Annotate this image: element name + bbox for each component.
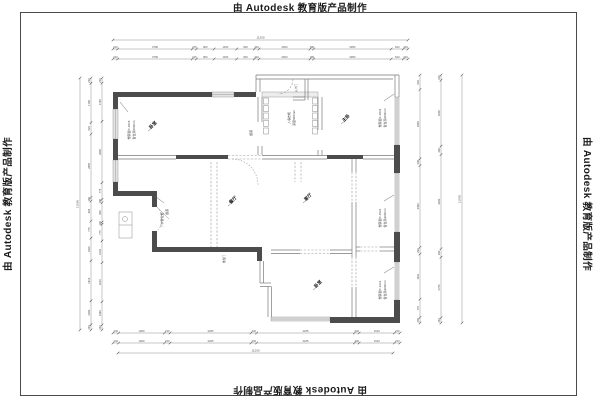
dim-left-row2-value: 775 bbox=[98, 230, 102, 235]
dim-right-row1-value: 290 bbox=[416, 248, 420, 253]
dim-bottom-row1-value: 1510 bbox=[374, 329, 380, 333]
dim-bottom-row2-value: 240 bbox=[114, 339, 119, 343]
annotation-closet-depth: 深度600mm bbox=[291, 110, 296, 127]
dim-top-row2-value: 240 bbox=[113, 55, 118, 59]
dim-left-overall-value: 11065 bbox=[76, 200, 80, 208]
dim-bottom-row1-value: 240 bbox=[252, 329, 257, 333]
dim-bottom-row1-value: 240 bbox=[114, 329, 119, 333]
dim-top-row2-value: 3950 bbox=[349, 55, 355, 59]
annotation-sill-bottomright: 窗台高900mm bbox=[382, 280, 387, 300]
dim-left-row1-value: 905 bbox=[87, 208, 91, 213]
dim-top-row1-value: 180 bbox=[310, 45, 315, 49]
annotation-window-midright: 塑钢窗C-1521 bbox=[377, 208, 382, 227]
dim-right-row2-value: 390 bbox=[437, 250, 441, 255]
dim-left-row2-value: 2865 bbox=[98, 149, 102, 155]
dim-top-row2-value: 2600 bbox=[282, 55, 288, 59]
dim-top-row1-value: 900 bbox=[203, 45, 208, 49]
leader-line bbox=[384, 94, 394, 101]
dim-right-row2-value: 390 bbox=[437, 148, 441, 153]
annotation-window-left: 塑钢窗C-1815 bbox=[126, 120, 131, 139]
dim-left-row1-value: 160 bbox=[87, 197, 91, 202]
dim-right-row1-value: 240 bbox=[416, 317, 420, 322]
dim-right-row1-value: 620 bbox=[416, 80, 420, 85]
dim-left-row2-value: 1020 bbox=[98, 248, 102, 254]
room-label-master-bedroom: 主卧 bbox=[340, 112, 352, 124]
dim-left-row2-value: 160 bbox=[98, 198, 102, 203]
dim-top-row2-value: 180 bbox=[310, 55, 315, 59]
dim-top-row2-value: 240 bbox=[254, 55, 259, 59]
annotation-flue: 烟道 bbox=[164, 209, 169, 215]
annotation-sill-midright: 窗台高900mm bbox=[382, 208, 387, 228]
dim-right-row1-value: 1931 bbox=[416, 273, 420, 279]
dim-bottom-row2-value: 4185 bbox=[303, 339, 309, 343]
dim-bottom-row2-value: 240 bbox=[395, 339, 400, 343]
window-mullions bbox=[116, 95, 398, 320]
dim-top-row1-value: 1150 bbox=[222, 45, 228, 49]
dim-bottom-row1-value: 1960 bbox=[139, 329, 145, 333]
room-label-dining: 餐厅 bbox=[227, 194, 239, 206]
dim-top-row2-value: 240 bbox=[403, 55, 408, 59]
annotation-sliding-door: 推拉门 bbox=[222, 255, 226, 264]
dim-bottom-overall-value: 11200 bbox=[251, 349, 259, 353]
dim-left-row1-value: 1815 bbox=[87, 277, 91, 283]
dim-left-row1-value: 2865 bbox=[87, 162, 91, 168]
drawing-canvas: 由Autodesk教育版产品制作 由Autodesk教育版产品制作 由Autod… bbox=[0, 0, 600, 403]
partition-walls-layer bbox=[118, 75, 399, 317]
dim-top-row2-value: 1150 bbox=[222, 55, 228, 59]
dim-left-row1-value: 1780 bbox=[87, 99, 91, 105]
dim-top-row1-value: 240 bbox=[403, 45, 408, 49]
dim-left-row2-value: 1080 bbox=[98, 310, 102, 316]
annotation-sill-left: 窗台高500mm bbox=[131, 120, 136, 140]
leader-line bbox=[120, 102, 128, 112]
annotation-window-topright: 塑钢窗C-1824 bbox=[377, 108, 382, 127]
annotation-pipe: 下水管位置 bbox=[159, 212, 164, 227]
dim-bottom-row1-value: 240 bbox=[165, 329, 170, 333]
dim-left-row2-value: 1780 bbox=[98, 99, 102, 105]
dim-right-row2-value: 2755 bbox=[437, 284, 441, 290]
annotation-window-bottomright: 塑钢窗C-1221 bbox=[377, 280, 382, 299]
room-label-bedroom-topleft: 卧室 bbox=[147, 119, 159, 131]
leader-line bbox=[384, 267, 394, 273]
dim-left-row2-value: 905 bbox=[98, 210, 102, 215]
dim-right-row2-value: 240 bbox=[437, 318, 441, 323]
dim-bottom-row2-value: 240 bbox=[165, 339, 170, 343]
annotation-flue-2: 烟道 bbox=[248, 130, 253, 136]
room-label-bedroom-bottom: 卧室 bbox=[312, 278, 324, 290]
dim-right-overall-value: 11065 bbox=[458, 195, 462, 203]
dim-bottom-row2-value: 1510 bbox=[374, 339, 380, 343]
dim-top-row1-value: 3796 bbox=[152, 45, 158, 49]
dim-left-row1-value: 775 bbox=[87, 227, 91, 232]
dim-right-row2-value: 4290 bbox=[437, 198, 441, 204]
dim-left-row2-value: 1815 bbox=[98, 279, 102, 285]
dim-top-overall-value: 11200 bbox=[256, 36, 264, 40]
room-label-living: 客厅 bbox=[302, 191, 314, 203]
dim-bottom-row1-value: 4185 bbox=[303, 329, 309, 333]
floor-plan-svg: 卧室主卧餐厅客厅卧室塑钢窗C-1815窗台高500mm入墙衣柜深度600mm塑钢… bbox=[0, 0, 600, 403]
dim-left-row1-value: 240 bbox=[87, 78, 91, 83]
dim-bottom-row2-value: 200 bbox=[355, 339, 360, 343]
dim-left-row2-value: 775 bbox=[98, 188, 102, 193]
dim-top-row2-value: 3796 bbox=[152, 55, 158, 59]
dim-bottom-row2-value: 240 bbox=[252, 339, 257, 343]
leader-line bbox=[384, 195, 394, 201]
dim-left-row2-value: 240 bbox=[98, 325, 102, 330]
annotation-closet: 入墙衣柜 bbox=[286, 112, 291, 124]
dim-top-row1-value: 900 bbox=[243, 45, 248, 49]
annotation-sill-topright: 窗台高900mm bbox=[382, 108, 387, 128]
dim-top-row2-value: 900 bbox=[203, 55, 208, 59]
text-layer: 卧室主卧餐厅客厅卧室塑钢窗C-1815窗台高500mm入墙衣柜深度600mm塑钢… bbox=[126, 84, 387, 300]
dim-bottom-row2-value: 3465 bbox=[208, 339, 214, 343]
dim-top-row2-value: 900 bbox=[243, 55, 248, 59]
annotation-entry-door: 入户门 bbox=[294, 84, 298, 93]
dim-right-row2-value: 240 bbox=[437, 75, 441, 80]
dim-right-row1-value: 3490 bbox=[416, 203, 420, 209]
dim-top-row1-value: 215 bbox=[192, 45, 197, 49]
dim-left-row1-value: 520 bbox=[87, 126, 91, 131]
dim-bottom-row1-value: 240 bbox=[395, 329, 400, 333]
dim-bottom-row1-value: 200 bbox=[355, 329, 360, 333]
dim-left-row1-value: 240 bbox=[87, 325, 91, 330]
dim-top-row1-value: 240 bbox=[254, 45, 259, 49]
dim-left-row1-value: 1020 bbox=[87, 246, 91, 252]
dim-right-row1-value: 775 bbox=[416, 306, 420, 311]
dim-top-row1-value: 620 bbox=[395, 45, 400, 49]
dim-top-row2-value: 620 bbox=[395, 55, 400, 59]
dim-right-row1-value: 290 bbox=[416, 159, 420, 164]
dim-bottom-row2-value: 1960 bbox=[139, 339, 145, 343]
dim-left-row1-value: 1080 bbox=[87, 309, 91, 315]
dim-top-row1-value: 2600 bbox=[282, 45, 288, 49]
dim-top-row1-value: 240 bbox=[113, 45, 118, 49]
dim-right-row1-value: 2955 bbox=[416, 121, 420, 127]
dim-top-row2-value: 215 bbox=[192, 55, 197, 59]
dim-left-row2-value: 240 bbox=[98, 78, 102, 83]
dim-top-row1-value: 3950 bbox=[349, 45, 355, 49]
dim-bottom-row1-value: 3465 bbox=[208, 329, 214, 333]
dim-right-row2-value: 3000 bbox=[437, 110, 441, 116]
